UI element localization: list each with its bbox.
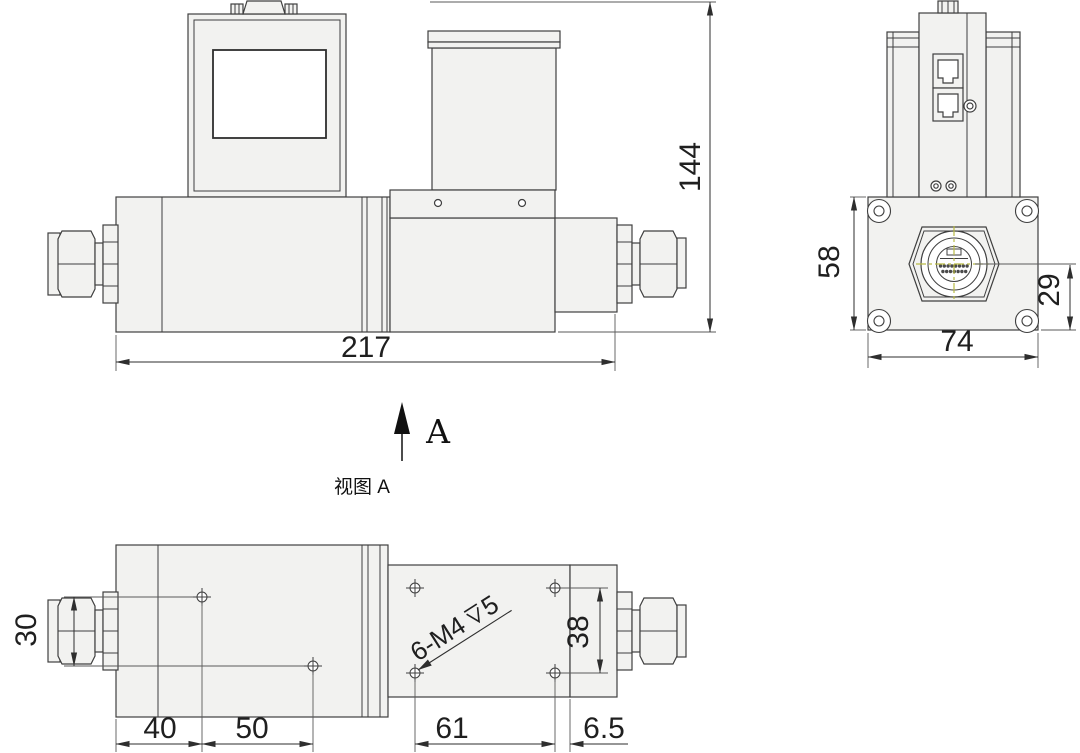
dim-text-217: 217 — [341, 331, 391, 364]
sensor-body — [116, 197, 390, 332]
flange-screw-hole — [435, 200, 442, 207]
outlet-block — [555, 218, 617, 312]
side-view: 58 29 74 — [813, 1, 1076, 368]
inlet-fitting-bottom — [48, 592, 118, 670]
top-connector-side — [938, 1, 958, 13]
corner-screw-icon — [1016, 200, 1039, 223]
flange-screw-hole — [519, 200, 526, 207]
corner-screw-icon — [868, 310, 891, 333]
valve-actuator — [428, 31, 560, 190]
view-arrow-letter: A — [425, 412, 451, 451]
inlet-fitting — [48, 225, 118, 303]
section-view-marker: A — [394, 402, 451, 461]
actuator-cap — [428, 31, 560, 42]
outlet-fitting-bottom — [617, 592, 686, 670]
dim-text-58: 58 — [813, 245, 846, 278]
drawing-canvas: 217 144 — [0, 0, 1080, 753]
corner-screw-icon — [1016, 310, 1039, 333]
dim-text-40: 40 — [143, 712, 176, 745]
dim-width-74: 74 — [868, 325, 1038, 368]
dim-text-29: 29 — [1033, 273, 1066, 306]
valve-flange — [390, 190, 555, 218]
side-screw-icon — [964, 100, 976, 112]
dim-text-74: 74 — [940, 325, 973, 358]
valve-block — [390, 218, 555, 332]
bottom-view: 30 40 50 61 6.5 38 — [10, 545, 686, 752]
dim-text-38: 38 — [562, 615, 595, 648]
technical-drawing-page: 217 144 — [0, 0, 1080, 753]
dim-text-30: 30 — [10, 613, 43, 646]
rj45-port-upper-icon — [933, 54, 963, 88]
corner-screw-icon — [868, 200, 891, 223]
dim-flange-58: 58 — [813, 197, 866, 330]
dim-text-50: 50 — [235, 712, 268, 745]
top-connector — [231, 1, 297, 14]
outlet-fitting — [617, 225, 686, 303]
sensor-body-bottom — [116, 545, 388, 717]
dim-text-144: 144 — [674, 142, 707, 192]
dim-text-61: 61 — [435, 712, 468, 745]
view-a-label: 视图 A — [334, 476, 390, 498]
actuator-cap-band — [428, 42, 560, 48]
dim-text-6-5: 6.5 — [583, 712, 625, 745]
actuator-cylinder — [432, 48, 556, 190]
display-screen — [213, 50, 326, 138]
front-view: 217 144 — [48, 1, 716, 371]
rj45-port-lower-icon — [933, 88, 963, 121]
view-direction-arrow-icon — [394, 402, 410, 434]
